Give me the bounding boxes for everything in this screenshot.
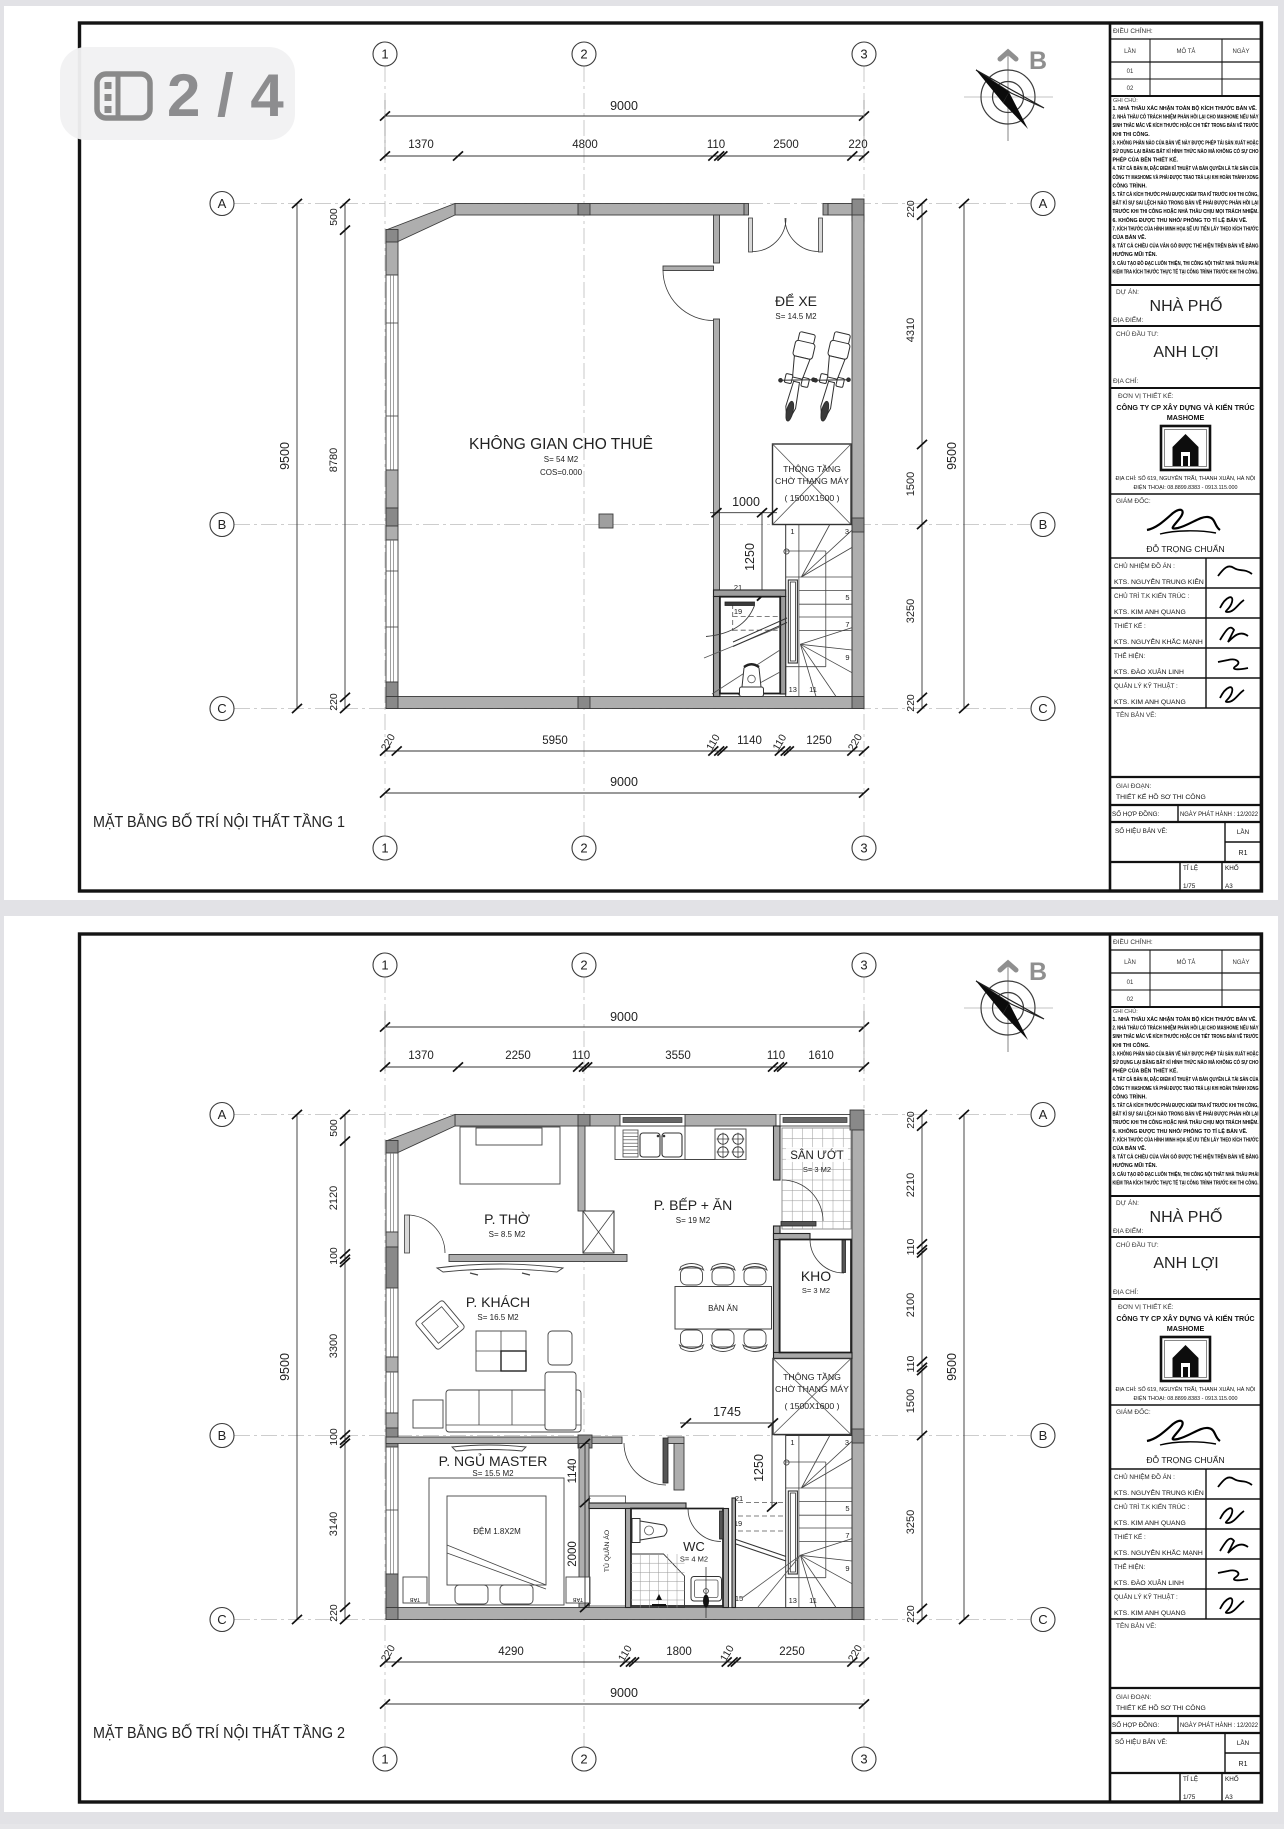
svg-text:BẤT KÌ SỰ SAI LỆCH NÀO TRONG B: BẤT KÌ SỰ SAI LỆCH NÀO TRONG BẢN VẼ PHẢI… [1113, 1110, 1259, 1118]
svg-text:GIAI ĐOẠN:: GIAI ĐOẠN: [1116, 783, 1152, 790]
svg-text:4800: 4800 [572, 139, 598, 151]
svg-text:21: 21 [735, 1494, 743, 1503]
svg-text:4290: 4290 [498, 1646, 524, 1658]
svg-text:KTS. KIM ANH QUANG: KTS. KIM ANH QUANG [1114, 609, 1186, 616]
svg-text:13: 13 [789, 685, 797, 694]
svg-text:ĐIỆN THOẠI: 08.8899.8383 - 091: ĐIỆN THOẠI: 08.8899.8383 - 0913.115.000 [1133, 483, 1237, 491]
svg-text:3. KHÔNG PHẦN NÀO CỦA BẢN VẼ N: 3. KHÔNG PHẦN NÀO CỦA BẢN VẼ NÀY ĐƯỢC PH… [1113, 138, 1259, 146]
svg-text:1500: 1500 [905, 1389, 917, 1413]
svg-text:1370: 1370 [408, 1050, 434, 1062]
svg-text:220: 220 [328, 693, 340, 711]
svg-text:02: 02 [1127, 86, 1134, 92]
svg-text:COS=0.000: COS=0.000 [540, 468, 583, 477]
svg-text:B: B [218, 517, 227, 532]
svg-text:2: 2 [580, 1752, 587, 1767]
svg-text:4. TẤT CẢ BẢN IN, ĐẶC ĐIỂM KĨ: 4. TẤT CẢ BẢN IN, ĐẶC ĐIỂM KĨ THUẬT VÀ B… [1113, 1076, 1259, 1083]
svg-text:KHÔNG GIAN CHO THUÊ: KHÔNG GIAN CHO THUÊ [469, 436, 653, 453]
svg-text:9: 9 [845, 1564, 849, 1573]
svg-text:DỰ ÁN:: DỰ ÁN: [1116, 1198, 1139, 1207]
svg-text:WC: WC [683, 1539, 705, 1554]
svg-text:01: 01 [1127, 980, 1134, 986]
svg-text:BẤT KÌ SỰ SAI LỆCH NÀO TRONG B: BẤT KÌ SỰ SAI LỆCH NÀO TRONG BẢN VẼ PHẢI… [1113, 199, 1259, 207]
svg-text:CỦA BẢN VẼ.: CỦA BẢN VẼ. [1113, 234, 1147, 241]
svg-text:A3: A3 [1225, 1794, 1233, 1801]
svg-text:GIAI ĐOẠN:: GIAI ĐOẠN: [1116, 1694, 1152, 1701]
svg-text:KTS. KIM ANH QUANG: KTS. KIM ANH QUANG [1114, 1610, 1186, 1617]
svg-text:1/75: 1/75 [1183, 883, 1196, 890]
svg-text:SÂN ƯỚT: SÂN ƯỚT [790, 1149, 844, 1162]
svg-text:3: 3 [860, 1752, 867, 1767]
svg-text:2: 2 [580, 958, 587, 973]
svg-text:3: 3 [845, 527, 849, 536]
svg-text:2: 2 [580, 47, 587, 62]
svg-text:GHI CHÚ:: GHI CHÚ: [1113, 1008, 1138, 1015]
svg-text:1140: 1140 [567, 1459, 579, 1484]
svg-text:CÔNG TY MASHOME VÀ PHẢI ĐƯỢC T: CÔNG TY MASHOME VÀ PHẢI ĐƯỢC TRAO TRẢ LẠ… [1113, 173, 1259, 181]
svg-text:1140: 1140 [737, 735, 762, 747]
svg-text:9. CẤU TẠO ĐỒ ĐẠC LUÔN THIỆN,: 9. CẤU TẠO ĐỒ ĐẠC LUÔN THIỆN, THI CÔNG N… [1113, 259, 1259, 267]
svg-text:1610: 1610 [808, 1050, 834, 1062]
svg-text:MÔ TẢ: MÔ TẢ [1177, 48, 1196, 55]
svg-text:4310: 4310 [905, 318, 917, 342]
svg-text:NGÀY PHÁT HÀNH : 12/2022: NGÀY PHÁT HÀNH : 12/2022 [1180, 1720, 1258, 1729]
svg-text:9500: 9500 [278, 1353, 292, 1381]
svg-text:11: 11 [809, 685, 817, 694]
svg-text:100: 100 [328, 1428, 340, 1446]
svg-text:2000: 2000 [567, 1541, 579, 1567]
svg-text:220: 220 [848, 139, 867, 151]
svg-text:ĐỂ XE: ĐỂ XE [775, 292, 817, 309]
svg-text:ĐIỆN THOẠI: 08.8899.8383 - 091: ĐIỆN THOẠI: 08.8899.8383 - 0913.115.000 [1133, 1394, 1237, 1402]
svg-text:S= 15.5 M2: S= 15.5 M2 [472, 1469, 514, 1478]
svg-text:KIỂM TRA KÍCH THƯỚC THỰC TẾ TẠ: KIỂM TRA KÍCH THƯỚC THỰC TẾ TẠI CÔNG TRÌ… [1113, 267, 1259, 275]
svg-text:P. BẾP + ĂN: P. BẾP + ĂN [654, 1197, 732, 1213]
svg-text:1. NHÀ THẦU XÁC NHẬN TOÀN BỘ K: 1. NHÀ THẦU XÁC NHẬN TOÀN BỘ KÍCH THƯỚC … [1113, 1015, 1258, 1023]
svg-text:ĐỊA ĐIỂM:: ĐỊA ĐIỂM: [1113, 1226, 1144, 1235]
svg-text:9000: 9000 [610, 775, 638, 789]
svg-text:2210: 2210 [905, 1173, 917, 1197]
svg-text:5: 5 [845, 593, 849, 602]
svg-text:TÊN BẢN VẼ:: TÊN BẢN VẼ: [1116, 1621, 1157, 1630]
svg-text:1: 1 [381, 958, 388, 973]
svg-text:ĐỊA CHỈ: SỐ 619, NGUYỄN TRÃI,: ĐỊA CHỈ: SỐ 619, NGUYỄN TRÃI, THANH XUÂN… [1116, 1386, 1256, 1393]
svg-text:ANH LỢI: ANH LỢI [1153, 344, 1218, 361]
svg-text:MẶT BẰNG BỐ TRÍ NỘI THẤT TẦNG: MẶT BẰNG BỐ TRÍ NỘI THẤT TẦNG 1 [93, 813, 345, 831]
svg-text:SINH THẮC MẮC VỀ KÍCH THƯỚC HO: SINH THẮC MẮC VỀ KÍCH THƯỚC HOẶC CHI TIẾ… [1113, 1032, 1259, 1040]
svg-text:1: 1 [790, 527, 794, 536]
svg-text:9000: 9000 [610, 99, 638, 113]
svg-text:9500: 9500 [278, 442, 292, 470]
svg-text:220: 220 [905, 694, 917, 712]
svg-text:ĐỆM 1.8X2M: ĐỆM 1.8X2M [473, 1527, 521, 1536]
svg-text:DỰ ÁN:: DỰ ÁN: [1116, 287, 1139, 296]
svg-text:TAB: TAB [410, 1596, 421, 1602]
svg-text:NHÀ PHỐ: NHÀ PHỐ [1150, 295, 1223, 315]
svg-text:THỂ HIỆN:: THỂ HIỆN: [1114, 651, 1145, 660]
svg-text:1000: 1000 [732, 495, 760, 509]
svg-text:13: 13 [789, 1596, 797, 1605]
svg-text:11: 11 [809, 1596, 817, 1605]
svg-text:KHO: KHO [801, 1268, 831, 1284]
svg-text:ĐỖ TRỌNG CHUẨN: ĐỖ TRỌNG CHUẨN [1146, 1454, 1224, 1465]
svg-text:MASHOME: MASHOME [1167, 1324, 1205, 1333]
svg-text:5: 5 [845, 1504, 849, 1513]
svg-text:CÔNG TY MASHOME VÀ PHẢI ĐƯỢC T: CÔNG TY MASHOME VÀ PHẢI ĐƯỢC TRAO TRẢ LẠ… [1113, 1084, 1259, 1092]
svg-text:2100: 2100 [905, 1293, 917, 1317]
svg-text:( 1500X1500 ): ( 1500X1500 ) [784, 493, 839, 503]
svg-text:110: 110 [905, 1238, 917, 1255]
svg-text:110: 110 [572, 1050, 590, 1062]
svg-text:A3: A3 [1225, 883, 1233, 890]
svg-text:ĐỊA CHỈ:: ĐỊA CHỈ: [1113, 1287, 1138, 1296]
svg-text:A: A [218, 196, 227, 211]
svg-text:CÔNG TRÌNH.: CÔNG TRÌNH. [1113, 1092, 1148, 1100]
svg-text:3: 3 [860, 958, 867, 973]
svg-text:2250: 2250 [779, 1646, 805, 1658]
svg-text:3550: 3550 [665, 1050, 691, 1062]
svg-text:1800: 1800 [666, 1646, 692, 1658]
svg-text:C: C [217, 1612, 226, 1627]
svg-text:3250: 3250 [905, 599, 917, 623]
svg-text:1745: 1745 [713, 1405, 741, 1419]
svg-text:8780: 8780 [328, 448, 340, 472]
svg-text:01: 01 [1127, 69, 1134, 75]
svg-text:C: C [1038, 701, 1047, 716]
svg-text:S= 3 M2: S= 3 M2 [803, 1165, 831, 1174]
svg-text:110: 110 [707, 139, 725, 151]
svg-text:SỬ DỤNG LẠI BẰNG BẤT KÌ HÌNH T: SỬ DỤNG LẠI BẰNG BẤT KÌ HÌNH THỨC NÀO MÀ… [1113, 1058, 1259, 1066]
svg-text:CỦA BẢN VẼ.: CỦA BẢN VẼ. [1113, 1145, 1147, 1152]
svg-text:LẦN: LẦN [1124, 959, 1136, 966]
svg-text:KTS. NGUYỄN TRUNG KIÊN: KTS. NGUYỄN TRUNG KIÊN [1114, 1488, 1204, 1497]
svg-text:5. TẤT CẢ KÍCH THƯỚC PHẢI ĐƯỢC: 5. TẤT CẢ KÍCH THƯỚC PHẢI ĐƯỢC KIỂM TRA … [1113, 1101, 1259, 1109]
svg-text:CÔNG TY CP XÂY DỰNG VÀ KIẾN TR: CÔNG TY CP XÂY DỰNG VÀ KIẾN TRÚC [1116, 1313, 1254, 1323]
svg-text:220: 220 [905, 200, 917, 218]
svg-text:R1: R1 [1239, 1761, 1248, 1768]
svg-text:ĐỖ TRỌNG CHUẨN: ĐỖ TRỌNG CHUẨN [1146, 543, 1224, 554]
svg-text:1370: 1370 [408, 139, 434, 151]
svg-text:4. TẤT CẢ BẢN IN, ĐẶC ĐIỂM KĨ: 4. TẤT CẢ BẢN IN, ĐẶC ĐIỂM KĨ THUẬT VÀ B… [1113, 165, 1259, 172]
svg-text:KTS. NGUYỄN KHẮC MẠNH: KTS. NGUYỄN KHẮC MẠNH [1114, 1548, 1203, 1557]
svg-text:9500: 9500 [945, 1353, 959, 1381]
svg-text:TỈ LỆ: TỈ LỆ [1183, 1774, 1198, 1783]
svg-text:1: 1 [381, 1752, 388, 1767]
svg-text:( 1500X1600 ): ( 1500X1600 ) [784, 1401, 839, 1411]
svg-text:THỂ HIỆN:: THỂ HIỆN: [1114, 1562, 1145, 1571]
svg-text:KTS. KIM ANH QUANG: KTS. KIM ANH QUANG [1114, 1520, 1186, 1527]
svg-text:3250: 3250 [905, 1510, 917, 1534]
svg-text:R1: R1 [1239, 850, 1248, 857]
svg-text:1/75: 1/75 [1183, 1794, 1196, 1801]
svg-text:A: A [1039, 1107, 1048, 1122]
svg-text:GHI CHÚ:: GHI CHÚ: [1113, 97, 1138, 104]
svg-text:2120: 2120 [328, 1186, 340, 1210]
svg-text:3: 3 [860, 841, 867, 856]
svg-text:500: 500 [328, 1119, 340, 1137]
svg-text:3: 3 [860, 47, 867, 62]
svg-text:P. KHÁCH: P. KHÁCH [466, 1294, 530, 1310]
svg-text:5950: 5950 [542, 735, 568, 747]
svg-text:S= 4 M2: S= 4 M2 [680, 1555, 708, 1564]
svg-text:1500: 1500 [905, 472, 917, 496]
svg-text:19: 19 [734, 607, 742, 616]
svg-text:TÊN BẢN VẼ:: TÊN BẢN VẼ: [1116, 710, 1157, 719]
svg-text:S= 19 M2: S= 19 M2 [676, 1216, 711, 1225]
svg-text:KHỔ: KHỔ [1225, 863, 1239, 872]
svg-text:ĐỊA CHỈ: SỐ 619, NGUYỄN TRÃI,: ĐỊA CHỈ: SỐ 619, NGUYỄN TRÃI, THANH XUÂN… [1116, 475, 1256, 482]
svg-text:SINH THẮC MẮC VỀ KÍCH THƯỚC HO: SINH THẮC MẮC VỀ KÍCH THƯỚC HOẶC CHI TIẾ… [1113, 121, 1259, 129]
svg-text:2250: 2250 [505, 1050, 531, 1062]
svg-text:PHÉP CỦA BÊN THIẾT KẾ.: PHÉP CỦA BÊN THIẾT KẾ. [1113, 1067, 1179, 1075]
svg-text:ĐỊA CHỈ:: ĐỊA CHỈ: [1113, 376, 1138, 385]
svg-text:1250: 1250 [752, 1454, 766, 1482]
svg-text:PHÉP CỦA BÊN THIẾT KẾ.: PHÉP CỦA BÊN THIẾT KẾ. [1113, 156, 1179, 164]
svg-text:C: C [1038, 1612, 1047, 1627]
svg-text:NGÀY PHÁT HÀNH : 12/2022: NGÀY PHÁT HÀNH : 12/2022 [1180, 809, 1258, 818]
svg-text:1250: 1250 [806, 735, 832, 747]
svg-text:B: B [1039, 1428, 1048, 1443]
svg-text:1: 1 [381, 47, 388, 62]
svg-text:KTS. KIM ANH QUANG: KTS. KIM ANH QUANG [1114, 699, 1186, 706]
svg-text:1: 1 [381, 841, 388, 856]
svg-text:P. NGỦ MASTER: P. NGỦ MASTER [439, 1452, 548, 1469]
svg-text:9000: 9000 [610, 1010, 638, 1024]
svg-text:2 / 4: 2 / 4 [167, 62, 284, 129]
svg-text:9500: 9500 [945, 442, 959, 470]
svg-text:NGÀY: NGÀY [1232, 48, 1249, 55]
svg-text:110: 110 [767, 1050, 785, 1062]
svg-text:500: 500 [328, 208, 340, 226]
svg-text:S= 54 M2: S= 54 M2 [544, 455, 579, 464]
svg-text:HƯỚNG MŨI TÊN.: HƯỚNG MŨI TÊN. [1113, 1161, 1158, 1169]
svg-text:KTS. ĐÀO XUÂN LINH: KTS. ĐÀO XUÂN LINH [1114, 1578, 1184, 1587]
svg-text:02: 02 [1127, 997, 1134, 1003]
svg-text:TRƯỚC KHI THI CÔNG HOẶC NHÀ TH: TRƯỚC KHI THI CÔNG HOẶC NHÀ THẦU CHỊU MỌ… [1113, 1118, 1259, 1126]
svg-text:THÔNG TẦNG: THÔNG TẦNG [783, 464, 841, 474]
svg-text:S= 3 M2: S= 3 M2 [802, 1286, 830, 1295]
svg-text:B: B [218, 1428, 227, 1443]
svg-text:7. KÍCH THƯỚC CỦA HÌNH MINH HỌ: 7. KÍCH THƯỚC CỦA HÌNH MINH HỌA SẼ ƯU TI… [1113, 1135, 1259, 1143]
svg-text:220: 220 [328, 1604, 340, 1622]
svg-text:220: 220 [905, 1605, 917, 1623]
svg-text:KHI THI CÔNG.: KHI THI CÔNG. [1113, 1041, 1151, 1049]
svg-text:9. CẤU TẠO ĐỒ ĐẠC LUÔN THIỆN,: 9. CẤU TẠO ĐỒ ĐẠC LUÔN THIỆN, THI CÔNG N… [1113, 1170, 1259, 1178]
svg-text:C: C [217, 701, 226, 716]
svg-text:CÔNG TY CP XÂY DỰNG VÀ KIẾN TR: CÔNG TY CP XÂY DỰNG VÀ KIẾN TRÚC [1116, 402, 1254, 412]
svg-text:A: A [1039, 196, 1048, 211]
svg-text:CHỜ THANG MÁY: CHỜ THANG MÁY [775, 476, 849, 486]
svg-text:NGÀY: NGÀY [1232, 959, 1249, 966]
svg-text:S= 16.5 M2: S= 16.5 M2 [477, 1313, 519, 1322]
svg-text:KTS. NGUYỄN KHẮC MẠNH: KTS. NGUYỄN KHẮC MẠNH [1114, 637, 1203, 646]
svg-text:TRƯỚC KHI THI CÔNG HOẶC NHÀ TH: TRƯỚC KHI THI CÔNG HOẶC NHÀ THẦU CHỊU MỌ… [1113, 207, 1259, 215]
svg-text:MÔ TẢ: MÔ TẢ [1177, 959, 1196, 966]
svg-text:1: 1 [790, 1438, 794, 1447]
svg-text:9000: 9000 [610, 1686, 638, 1700]
svg-text:ĐỊA ĐIỂM:: ĐỊA ĐIỂM: [1113, 315, 1144, 324]
svg-text:KHI THI CÔNG.: KHI THI CÔNG. [1113, 130, 1151, 138]
svg-text:220: 220 [905, 1111, 917, 1129]
svg-text:7. KÍCH THƯỚC CỦA HÌNH MINH HỌ: 7. KÍCH THƯỚC CỦA HÌNH MINH HỌA SẼ ƯU TI… [1113, 224, 1259, 232]
svg-text:S= 8.5 M2: S= 8.5 M2 [489, 1230, 526, 1239]
svg-text:TỈ LỆ: TỈ LỆ [1183, 863, 1198, 872]
svg-text:110: 110 [905, 1355, 917, 1372]
svg-text:ANH LỢI: ANH LỢI [1153, 1255, 1218, 1272]
svg-text:TAB: TAB [573, 1596, 584, 1602]
svg-text:CÔNG TRÌNH.: CÔNG TRÌNH. [1113, 181, 1148, 189]
svg-text:QUẢN LÝ KỸ THUẬT :: QUẢN LÝ KỸ THUẬT : [1114, 681, 1178, 690]
svg-text:15: 15 [735, 1594, 743, 1603]
svg-text:2500: 2500 [773, 139, 799, 151]
svg-text:A: A [218, 1107, 227, 1122]
svg-text:B: B [1039, 517, 1048, 532]
svg-text:S= 14.5 M2: S= 14.5 M2 [775, 312, 817, 321]
svg-text:2. NHÀ THẦU CÓ TRÁCH NHIỆM PHẢ: 2. NHÀ THẦU CÓ TRÁCH NHIỆM PHẢN HỒI LẠI … [1113, 113, 1259, 121]
svg-text:BÀN ĂN: BÀN ĂN [708, 1304, 738, 1313]
svg-text:KIỂM TRA KÍCH THƯỚC THỰC TẾ TẠ: KIỂM TRA KÍCH THƯỚC THỰC TẾ TẠI CÔNG TRÌ… [1113, 1178, 1259, 1186]
svg-text:KHỔ: KHỔ [1225, 1774, 1239, 1783]
svg-text:LẦN: LẦN [1124, 48, 1136, 55]
svg-text:THÔNG TẦNG: THÔNG TẦNG [783, 1372, 841, 1382]
svg-text:2. NHÀ THẦU CÓ TRÁCH NHIỆM PHẢ: 2. NHÀ THẦU CÓ TRÁCH NHIỆM PHẢN HỒI LẠI … [1113, 1024, 1259, 1032]
svg-text:MASHOME: MASHOME [1167, 413, 1205, 422]
svg-text:MẶT BẰNG BỐ TRÍ NỘI THẤT TẦNG: MẶT BẰNG BỐ TRÍ NỘI THẤT TẦNG 2 [93, 1724, 345, 1742]
svg-text:P. THỜ: P. THỜ [484, 1211, 530, 1227]
svg-text:3140: 3140 [328, 1512, 340, 1536]
svg-text:9: 9 [845, 653, 849, 662]
svg-text:6. KHÔNG ĐƯỢC THU NHỎ/ PHÓNG T: 6. KHÔNG ĐƯỢC THU NHỎ/ PHÓNG TO TỈ LỆ BẢ… [1113, 1127, 1248, 1135]
svg-text:8. TẤT CẢ CHIỀU CỦA VÂN GỖ ĐƯỢ: 8. TẤT CẢ CHIỀU CỦA VÂN GỖ ĐƯỢC THỂ HIỆN… [1113, 1153, 1259, 1161]
svg-text:SỬ DỤNG LẠI BẰNG BẤT KÌ HÌNH T: SỬ DỤNG LẠI BẰNG BẤT KÌ HÌNH THỨC NÀO MÀ… [1113, 147, 1259, 155]
svg-text:3: 3 [845, 1438, 849, 1447]
svg-text:8. TẤT CẢ CHIỀU CỦA VÂN GỖ ĐƯỢ: 8. TẤT CẢ CHIỀU CỦA VÂN GỖ ĐƯỢC THỂ HIỆN… [1113, 242, 1259, 250]
svg-text:KTS. NGUYỄN TRUNG KIÊN: KTS. NGUYỄN TRUNG KIÊN [1114, 577, 1204, 586]
svg-text:2: 2 [580, 841, 587, 856]
svg-text:100: 100 [328, 1247, 340, 1265]
svg-text:5. TẤT CẢ KÍCH THƯỚC PHẢI ĐƯỢC: 5. TẤT CẢ KÍCH THƯỚC PHẢI ĐƯỢC KIỂM TRA … [1113, 190, 1259, 198]
svg-text:1. NHÀ THẦU XÁC NHẬN TOÀN BỘ K: 1. NHÀ THẦU XÁC NHẬN TOÀN BỘ KÍCH THƯỚC … [1113, 104, 1258, 112]
svg-text:7: 7 [845, 1531, 849, 1540]
svg-text:HƯỚNG MŨI TÊN.: HƯỚNG MŨI TÊN. [1113, 250, 1158, 258]
svg-text:3300: 3300 [328, 1334, 340, 1358]
svg-text:KTS. ĐÀO XUÂN LINH: KTS. ĐÀO XUÂN LINH [1114, 667, 1184, 676]
svg-text:6. KHÔNG ĐƯỢC THU NHỎ/ PHÓNG T: 6. KHÔNG ĐƯỢC THU NHỎ/ PHÓNG TO TỈ LỆ BẢ… [1113, 216, 1248, 224]
svg-text:NHÀ PHỐ: NHÀ PHỐ [1150, 1206, 1223, 1226]
svg-text:CHỜ THANG MÁY: CHỜ THANG MÁY [775, 1384, 849, 1394]
svg-text:1250: 1250 [743, 543, 757, 571]
svg-text:3. KHÔNG PHẦN NÀO CỦA BẢN VẼ N: 3. KHÔNG PHẦN NÀO CỦA BẢN VẼ NÀY ĐƯỢC PH… [1113, 1049, 1259, 1057]
svg-text:QUẢN LÝ KỸ THUẬT :: QUẢN LÝ KỸ THUẬT : [1114, 1592, 1178, 1601]
svg-text:7: 7 [845, 620, 849, 629]
